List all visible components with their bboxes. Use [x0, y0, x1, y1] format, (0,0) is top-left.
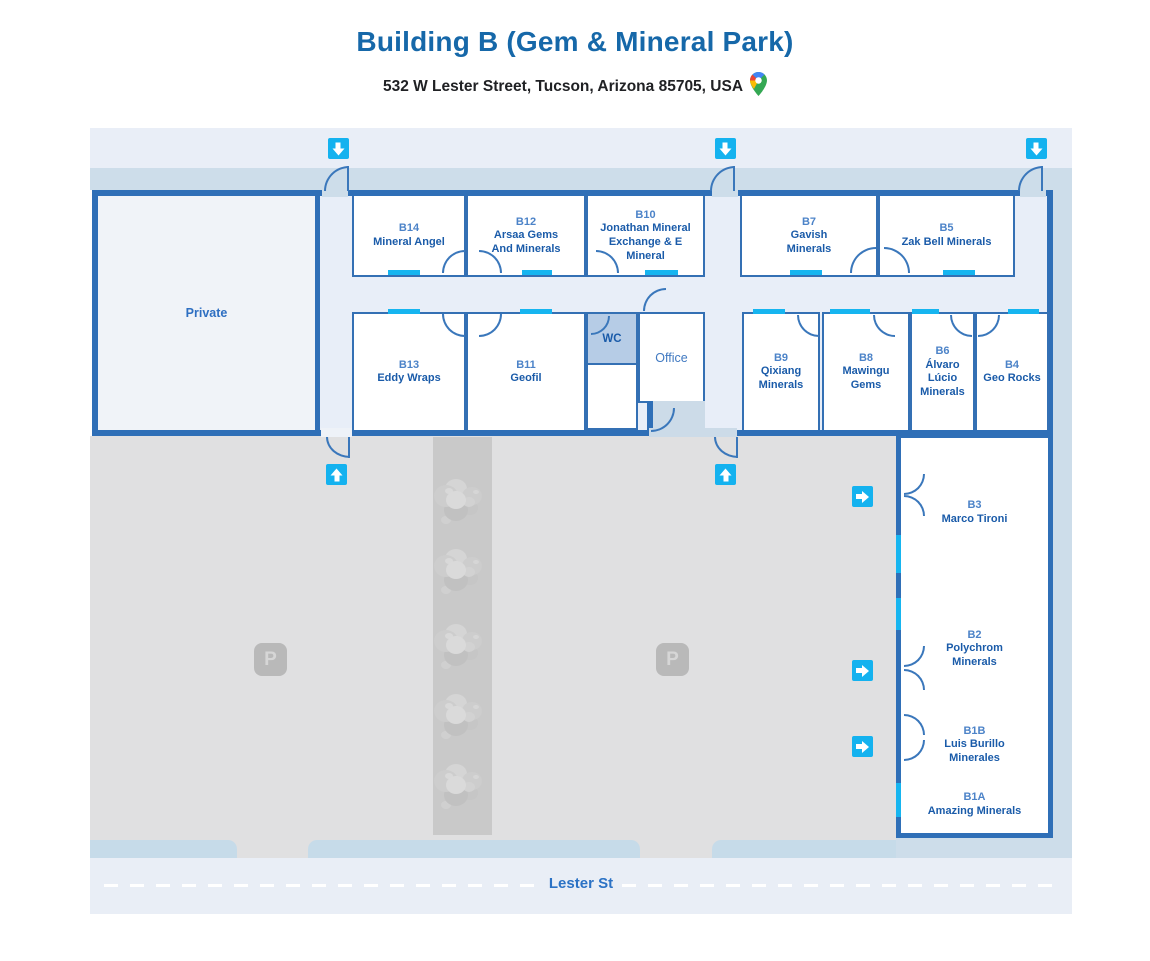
top-lawn-strip	[90, 128, 1072, 168]
private-room: Private	[98, 196, 320, 430]
parking-icon: P	[656, 643, 689, 676]
google-maps-pin-icon[interactable]	[750, 72, 767, 101]
door-marker	[1008, 309, 1039, 314]
room-b8[interactable]: B8 Mawingu Gems	[822, 312, 910, 430]
door-leaf	[1041, 166, 1043, 191]
door-marker	[388, 270, 420, 275]
parking-lot	[90, 436, 896, 858]
street-sidewalk-segment	[308, 840, 640, 858]
door-marker	[388, 309, 420, 314]
tree-icon	[445, 764, 467, 784]
tree-icon	[445, 549, 467, 569]
private-label: Private	[186, 306, 228, 320]
address-row: 532 W Lester Street, Tucson, Arizona 857…	[0, 72, 1150, 101]
door-opening	[649, 428, 737, 437]
building-b-floorplan: Lester St P P Private B14 Mineral Angel …	[90, 128, 1072, 914]
door-leaf	[733, 166, 735, 191]
right-building: B3 Marco Tironi B2 Polychrom Minerals B1…	[896, 433, 1053, 838]
door-leaf	[348, 437, 350, 458]
office-room: Office	[638, 312, 705, 403]
entrance-down-arrow-icon	[1026, 138, 1047, 159]
street-name-label: Lester St	[540, 875, 622, 892]
door-marker	[896, 783, 901, 817]
door-marker	[896, 535, 901, 573]
tree-icon	[445, 694, 467, 714]
tree-icon	[445, 624, 467, 644]
street-center-line	[622, 884, 1058, 887]
page-title: Building B (Gem & Mineral Park)	[0, 26, 1150, 58]
storage-room	[586, 363, 638, 430]
door-marker	[943, 270, 975, 275]
entrance-down-arrow-icon	[715, 138, 736, 159]
header: Building B (Gem & Mineral Park) 532 W Le…	[0, 26, 1150, 101]
door-leaf	[736, 437, 738, 458]
room-b1a[interactable]: B1A Amazing Minerals	[901, 779, 1048, 830]
door-leaf	[347, 166, 349, 191]
main-building: Private B14 Mineral Angel B12 Arsaa Gems…	[92, 190, 1053, 436]
door-marker	[830, 309, 870, 314]
door-marker	[896, 598, 901, 630]
door-marker	[522, 270, 552, 275]
door-opening	[321, 428, 352, 437]
address-text: 532 W Lester Street, Tucson, Arizona 857…	[383, 78, 743, 96]
door-marker	[520, 309, 552, 314]
street-center-line	[104, 884, 540, 887]
door-marker	[790, 270, 822, 275]
door-marker	[645, 270, 678, 275]
top-sidewalk	[90, 168, 1072, 190]
side-entrance-right-arrow-icon	[852, 486, 873, 507]
side-entrance-right-arrow-icon	[852, 736, 873, 757]
exit-up-arrow-icon	[715, 464, 736, 485]
entrance-down-arrow-icon	[328, 138, 349, 159]
tree-icon	[445, 479, 467, 499]
door-marker	[912, 309, 939, 314]
door-marker	[753, 309, 785, 314]
side-entrance-right-arrow-icon	[852, 660, 873, 681]
street-sidewalk-segment	[90, 840, 237, 858]
exit-up-arrow-icon	[326, 464, 347, 485]
street-sidewalk-segment	[712, 840, 896, 858]
right-sidewalk	[1053, 190, 1072, 858]
parking-icon: P	[254, 643, 287, 676]
